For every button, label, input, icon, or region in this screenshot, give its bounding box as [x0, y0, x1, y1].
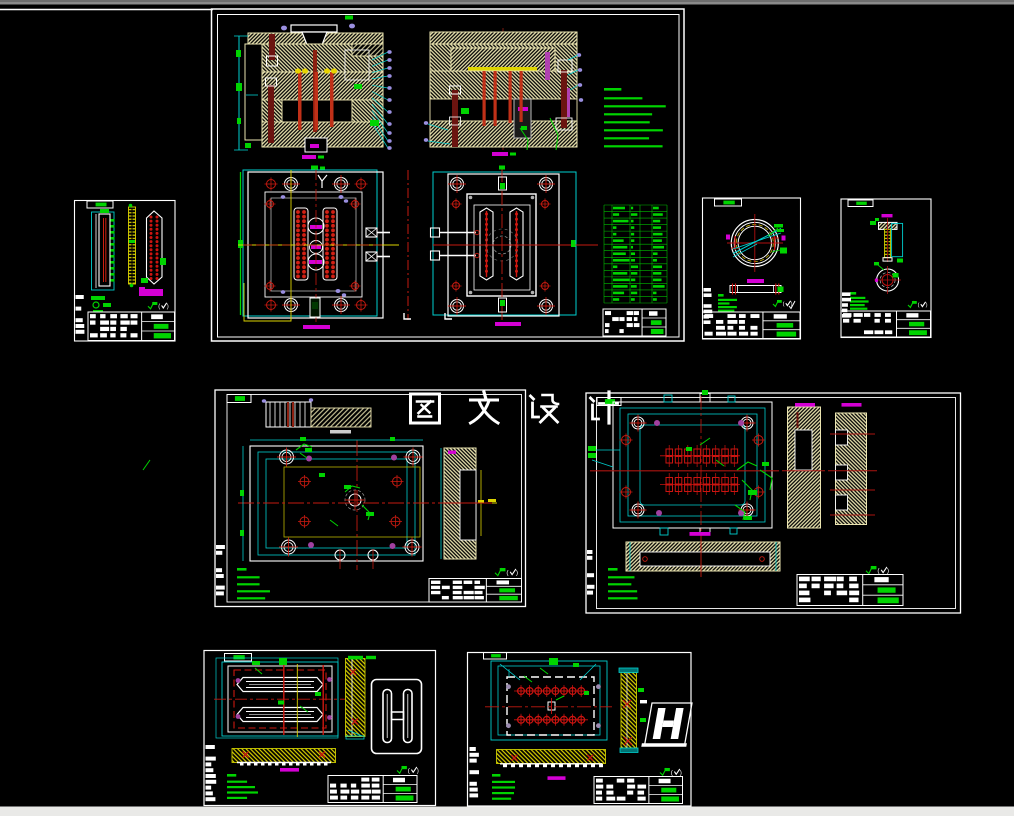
svg-text:(: ( [783, 302, 785, 308]
svg-text:): ) [167, 304, 169, 310]
svg-text:(: ( [158, 304, 160, 310]
svg-text:): ) [926, 303, 928, 309]
svg-text:(: ( [918, 303, 920, 309]
svg-text:): ) [680, 769, 682, 776]
svg-text:): ) [887, 568, 889, 575]
svg-text:): ) [417, 767, 419, 774]
svg-text:): ) [516, 570, 518, 577]
